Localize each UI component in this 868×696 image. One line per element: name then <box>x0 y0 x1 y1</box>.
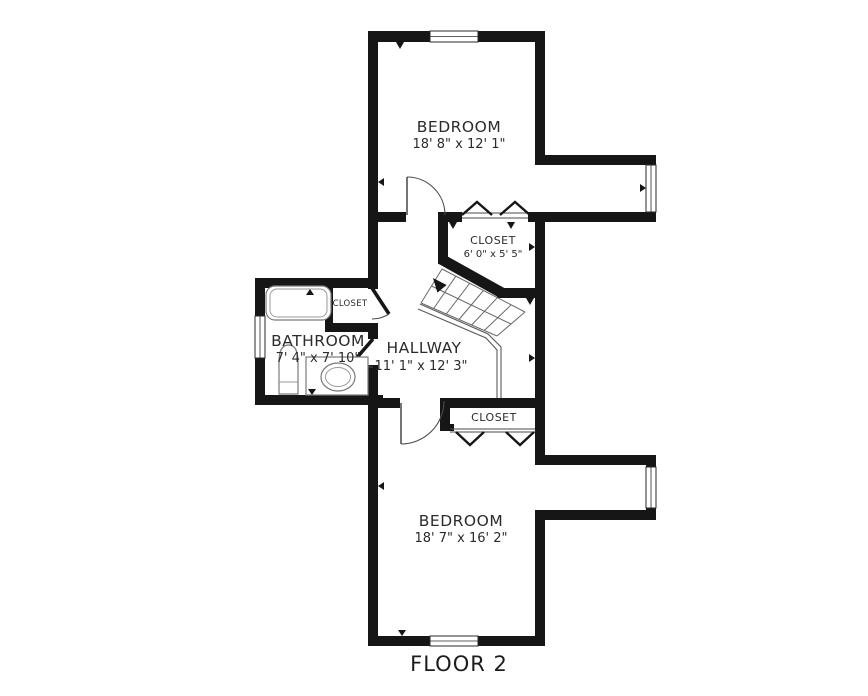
bathtub <box>266 286 331 320</box>
door-top-bedroom <box>407 177 445 215</box>
tick-icon <box>398 630 406 636</box>
tick-icon <box>640 184 646 192</box>
window <box>430 636 478 646</box>
wall <box>442 398 545 408</box>
bifold-chevron <box>506 432 534 445</box>
room-label-hallway: HALLWAY <box>387 339 462 357</box>
wall <box>368 212 406 222</box>
tick-icon <box>378 482 384 490</box>
room-dims-bedroom-top: 18' 8" x 12' 1" <box>413 137 506 152</box>
wall <box>535 31 545 165</box>
tick-icon <box>396 42 404 49</box>
window <box>646 467 656 508</box>
room-dims-hallway: 11' 1" x 12' 3" <box>375 359 468 374</box>
wall <box>535 455 656 465</box>
room-label-bathroom: BATHROOM <box>271 332 365 350</box>
room-label-closet-bottom: CLOSET <box>471 411 517 424</box>
door-bottom-bedroom <box>401 401 444 444</box>
room-dims-bathroom: 7' 4" x 7' 10" <box>276 351 361 366</box>
tick-icon <box>449 222 457 229</box>
room-label-closet-mid: CLOSET <box>470 234 516 247</box>
wall <box>535 510 656 520</box>
door-hall-closet <box>372 288 389 319</box>
room-label-closet-bath: CLOSET <box>333 299 368 309</box>
room-label-bedroom-bottom: BEDROOM <box>419 512 503 530</box>
room-label-bedroom-top: BEDROOM <box>417 118 501 136</box>
window <box>255 316 265 358</box>
wall <box>440 424 454 431</box>
floorplan-page: BEDROOM 18' 8" x 12' 1" CLOSET 6' 0" x 5… <box>0 0 868 696</box>
tick-icon <box>507 222 515 229</box>
wall <box>535 212 545 465</box>
floorplan-svg: BEDROOM 18' 8" x 12' 1" CLOSET 6' 0" x 5… <box>0 0 868 696</box>
wall <box>325 323 378 332</box>
wall <box>535 510 545 646</box>
wall <box>255 395 383 405</box>
tick-icon <box>529 354 535 362</box>
bifold-chevron <box>456 432 484 445</box>
up-arrow-icon <box>433 278 447 293</box>
wall <box>528 212 656 222</box>
wall <box>368 398 378 646</box>
wall <box>368 31 378 289</box>
wall <box>440 398 450 428</box>
room-dims-closet-mid: 6' 0" x 5' 5" <box>464 249 523 260</box>
wall <box>535 155 656 165</box>
tick-icon <box>378 178 384 186</box>
room-dims-bedroom-bottom: 18' 7" x 16' 2" <box>415 531 508 546</box>
wall <box>446 212 462 222</box>
floor-title: FLOOR 2 <box>410 652 508 676</box>
window <box>430 31 478 42</box>
tick-icon <box>529 243 535 251</box>
window <box>646 165 656 212</box>
wall-diagonal <box>441 259 502 293</box>
tick-icon <box>526 298 534 305</box>
